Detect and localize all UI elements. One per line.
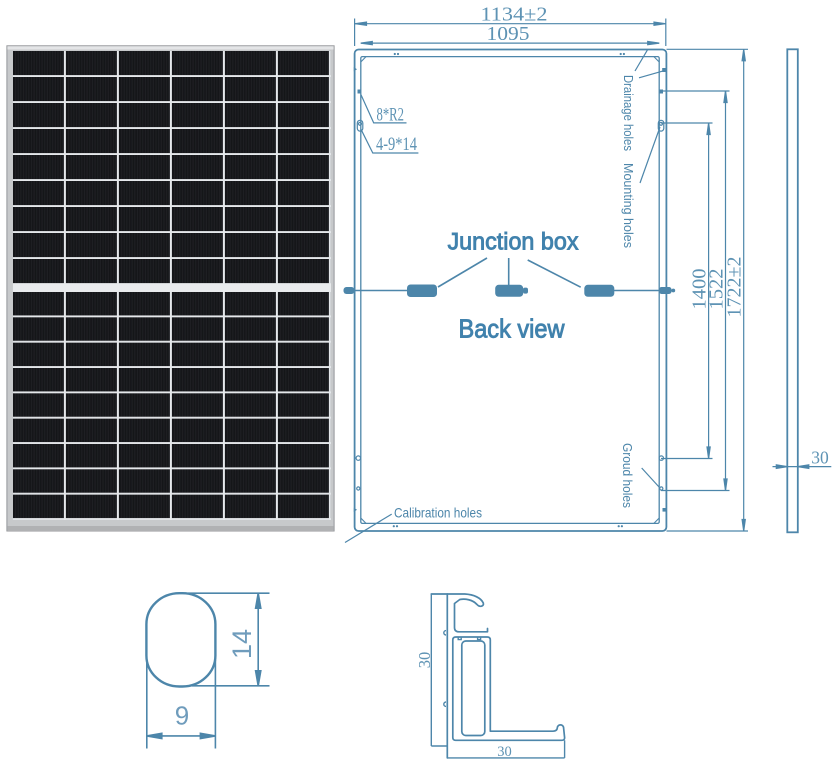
svg-text:Mounting holes: Mounting holes [621, 163, 636, 248]
svg-text:30: 30 [811, 448, 829, 468]
svg-text:30: 30 [415, 652, 434, 669]
svg-text:Groud holes: Groud holes [620, 443, 635, 508]
svg-text:Calibration holes: Calibration holes [394, 505, 482, 521]
svg-text:4-9*14: 4-9*14 [376, 134, 417, 155]
svg-text:9: 9 [175, 701, 189, 731]
svg-text:1095: 1095 [487, 23, 530, 45]
svg-text:Back view: Back view [459, 314, 565, 344]
svg-text:30: 30 [497, 744, 512, 760]
svg-text:14: 14 [227, 629, 257, 659]
svg-text:Junction box: Junction box [448, 229, 579, 256]
svg-text:Drainage holes: Drainage holes [621, 75, 636, 151]
svg-text:1400: 1400 [688, 269, 710, 310]
svg-text:8*R2: 8*R2 [377, 105, 405, 126]
